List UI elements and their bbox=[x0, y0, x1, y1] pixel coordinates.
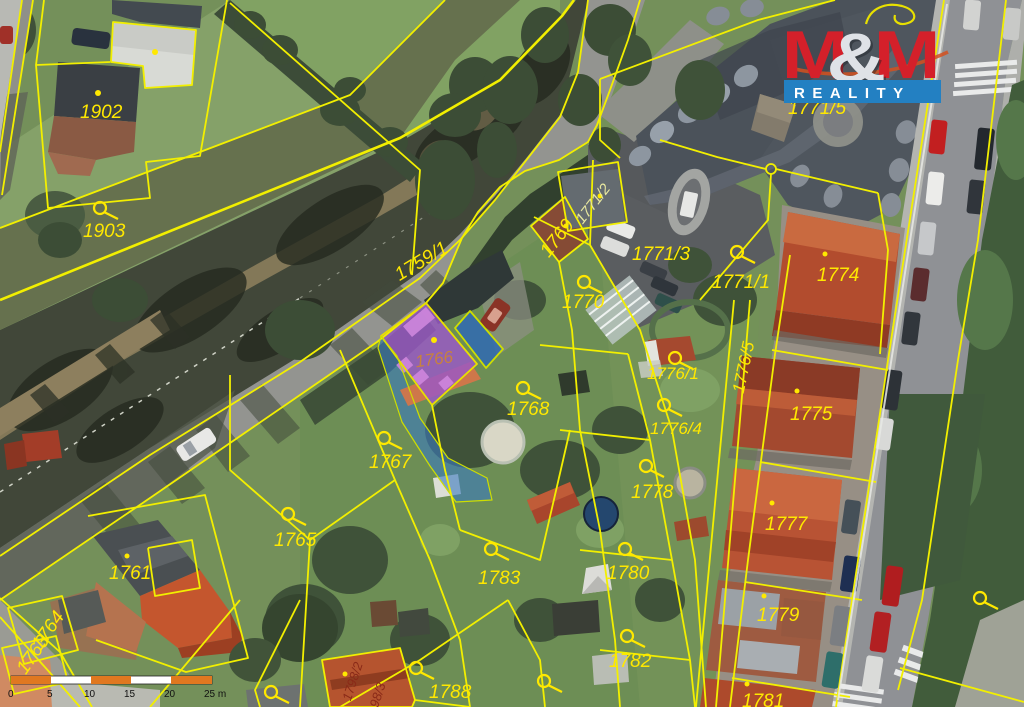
svg-text:1902: 1902 bbox=[80, 102, 123, 123]
svg-text:1779: 1779 bbox=[757, 605, 800, 626]
svg-text:1771/3: 1771/3 bbox=[632, 244, 691, 265]
svg-text:1768: 1768 bbox=[507, 399, 550, 420]
svg-text:1778: 1778 bbox=[631, 482, 674, 503]
svg-text:REALITY: REALITY bbox=[794, 85, 911, 102]
svg-text:1775: 1775 bbox=[790, 404, 833, 425]
svg-text:15: 15 bbox=[124, 689, 136, 700]
svg-text:1788: 1788 bbox=[429, 682, 472, 703]
svg-text:10: 10 bbox=[84, 689, 96, 700]
svg-text:1780: 1780 bbox=[607, 563, 650, 584]
svg-text:1903: 1903 bbox=[83, 221, 126, 242]
svg-text:1781: 1781 bbox=[742, 691, 784, 707]
svg-text:25 m: 25 m bbox=[204, 689, 226, 700]
svg-text:1783: 1783 bbox=[478, 568, 521, 589]
svg-text:1767: 1767 bbox=[369, 452, 413, 473]
svg-text:0: 0 bbox=[8, 689, 14, 700]
svg-text:1761: 1761 bbox=[109, 563, 151, 584]
svg-text:1765: 1765 bbox=[274, 530, 317, 551]
svg-text:20: 20 bbox=[164, 689, 176, 700]
svg-text:1782: 1782 bbox=[609, 651, 652, 672]
svg-text:1771/1: 1771/1 bbox=[712, 272, 770, 293]
svg-text:5: 5 bbox=[47, 689, 53, 700]
svg-text:1776/4: 1776/4 bbox=[650, 419, 702, 438]
svg-text:1774: 1774 bbox=[817, 265, 859, 286]
svg-text:1770: 1770 bbox=[562, 292, 605, 313]
svg-text:1777: 1777 bbox=[765, 514, 809, 535]
svg-text:1776/1: 1776/1 bbox=[647, 364, 699, 383]
